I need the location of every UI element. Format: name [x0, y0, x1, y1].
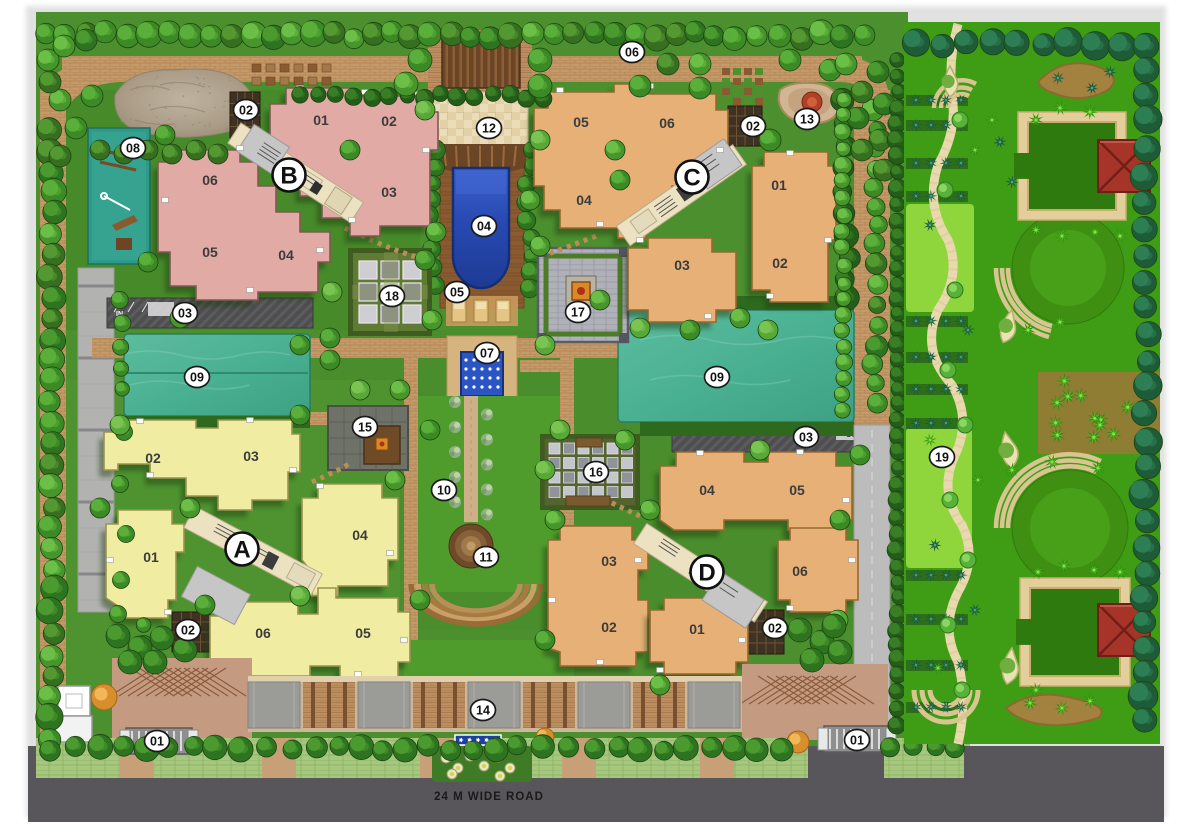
svg-text:02: 02: [381, 113, 397, 129]
svg-text:02: 02: [239, 104, 253, 118]
svg-text:03: 03: [243, 448, 259, 464]
svg-text:13: 13: [800, 113, 814, 127]
svg-text:09: 09: [710, 371, 724, 385]
svg-text:11: 11: [479, 551, 492, 565]
svg-text:05: 05: [573, 114, 589, 130]
svg-text:19: 19: [935, 451, 949, 465]
svg-text:B: B: [280, 163, 297, 190]
svg-text:05: 05: [450, 286, 464, 300]
svg-text:18: 18: [385, 290, 399, 304]
svg-text:06: 06: [202, 172, 218, 188]
svg-text:03: 03: [381, 184, 397, 200]
svg-text:06: 06: [255, 625, 271, 641]
svg-text:04: 04: [278, 247, 294, 263]
svg-text:01: 01: [850, 734, 864, 748]
svg-text:01: 01: [150, 735, 164, 749]
svg-text:02: 02: [145, 450, 161, 466]
svg-text:14: 14: [476, 704, 490, 718]
svg-text:02: 02: [768, 622, 782, 636]
svg-text:17: 17: [571, 306, 585, 320]
svg-text:24 M WIDE ROAD: 24 M WIDE ROAD: [434, 791, 544, 803]
svg-text:A: A: [233, 537, 250, 564]
svg-text:08: 08: [126, 142, 140, 156]
svg-text:02: 02: [181, 624, 195, 638]
svg-text:D: D: [698, 560, 715, 587]
svg-text:07: 07: [480, 347, 494, 361]
svg-text:04: 04: [477, 220, 491, 234]
svg-text:06: 06: [792, 563, 808, 579]
svg-text:06: 06: [659, 115, 675, 131]
svg-text:02: 02: [746, 120, 760, 134]
svg-text:09: 09: [190, 371, 204, 385]
svg-text:01: 01: [771, 177, 787, 193]
svg-text:03: 03: [799, 431, 813, 445]
svg-text:05: 05: [355, 625, 371, 641]
svg-text:12: 12: [482, 122, 496, 136]
svg-text:04: 04: [352, 527, 368, 543]
svg-text:C: C: [683, 165, 700, 192]
svg-text:16: 16: [589, 466, 603, 480]
svg-text:15: 15: [358, 421, 372, 435]
svg-text:03: 03: [178, 307, 192, 321]
svg-text:03: 03: [601, 553, 617, 569]
svg-text:06: 06: [625, 46, 639, 60]
svg-text:02: 02: [772, 255, 788, 271]
svg-text:05: 05: [789, 482, 805, 498]
svg-text:01: 01: [143, 549, 159, 565]
svg-text:10: 10: [437, 484, 451, 498]
svg-text:03: 03: [674, 257, 690, 273]
svg-text:05: 05: [202, 244, 218, 260]
svg-text:04: 04: [576, 192, 592, 208]
svg-text:01: 01: [313, 112, 329, 128]
svg-text:02: 02: [601, 619, 617, 635]
svg-text:04: 04: [699, 482, 715, 498]
svg-text:01: 01: [689, 621, 705, 637]
